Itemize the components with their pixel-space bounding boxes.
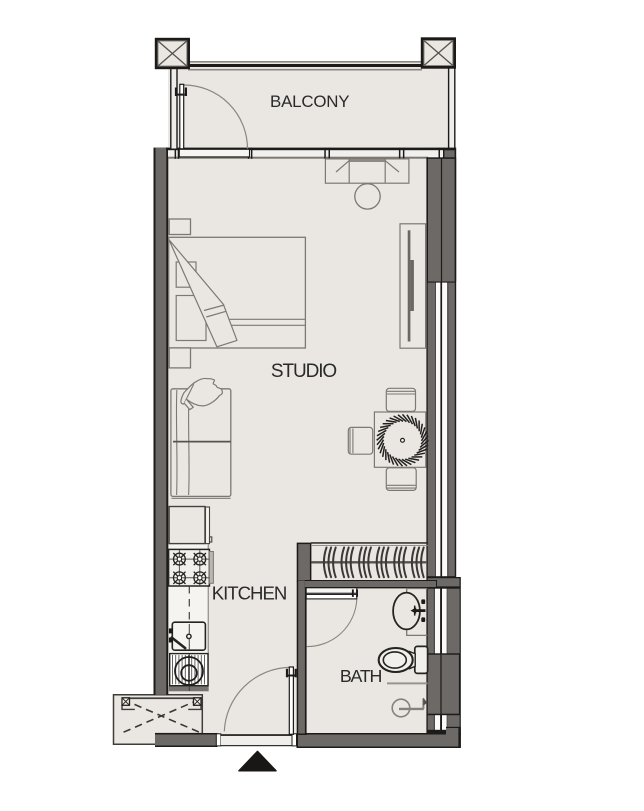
svg-text:BATH: BATH <box>340 666 382 686</box>
svg-text:KITCHEN: KITCHEN <box>212 583 287 604</box>
svg-text:BALCONY: BALCONY <box>270 92 349 111</box>
svg-text:STUDIO: STUDIO <box>271 361 337 382</box>
